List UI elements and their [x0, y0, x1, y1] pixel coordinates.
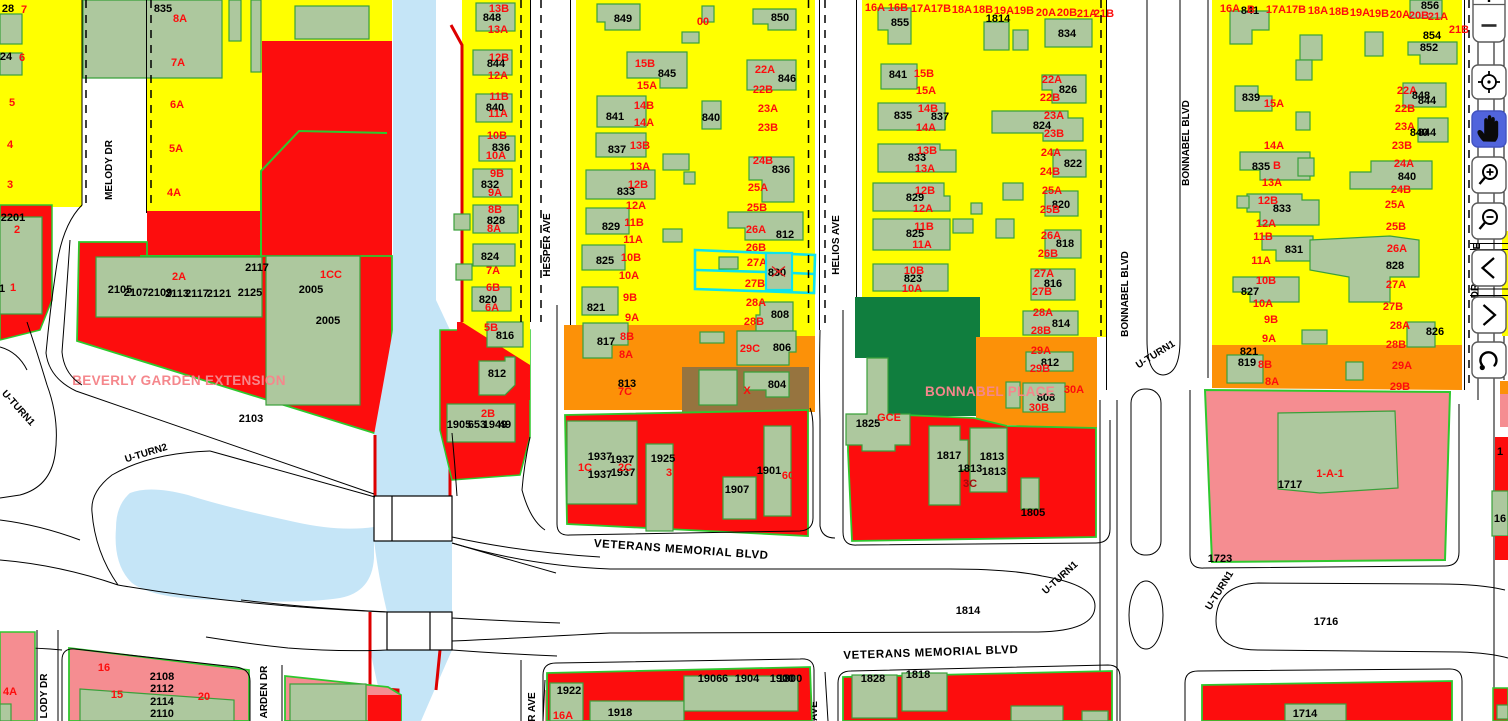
svg-text:X: X — [743, 385, 751, 397]
svg-text:8A: 8A — [487, 223, 501, 235]
svg-text:23A: 23A — [758, 103, 778, 115]
svg-text:844: 844 — [1418, 95, 1437, 107]
svg-text:2103: 2103 — [239, 413, 263, 425]
svg-text:6: 6 — [722, 673, 728, 685]
svg-text:24A: 24A — [1041, 147, 1061, 159]
svg-text:13A: 13A — [630, 161, 650, 173]
svg-text:11B: 11B — [624, 217, 644, 229]
svg-text:9A: 9A — [625, 312, 639, 324]
svg-text:BONNABEL BLVD: BONNABEL BLVD — [1120, 251, 1131, 337]
svg-text:835: 835 — [154, 3, 172, 15]
svg-text:1925: 1925 — [651, 453, 675, 465]
svg-text:22B: 22B — [1040, 92, 1060, 104]
svg-text:6B: 6B — [486, 282, 500, 294]
svg-text:1918: 1918 — [608, 707, 632, 719]
svg-text:10A: 10A — [486, 150, 506, 162]
svg-text:21B: 21B — [1449, 24, 1469, 36]
svg-text:812: 812 — [776, 229, 794, 241]
svg-text:18A: 18A — [952, 4, 972, 16]
svg-text:835: 835 — [894, 110, 912, 122]
svg-text:28B: 28B — [1386, 339, 1406, 351]
svg-text:819: 819 — [1238, 357, 1256, 369]
svg-text:12A: 12A — [1256, 218, 1276, 230]
svg-text:10B: 10B — [487, 130, 507, 142]
svg-text:11B: 11B — [1253, 231, 1273, 243]
svg-text:12A: 12A — [913, 203, 933, 215]
svg-text:16: 16 — [98, 662, 110, 674]
svg-text:1813: 1813 — [980, 451, 1004, 463]
svg-text:4A: 4A — [167, 187, 181, 199]
svg-text:19B: 19B — [1369, 8, 1389, 20]
svg-text:1: 1 — [10, 282, 16, 294]
svg-text:1814: 1814 — [986, 13, 1011, 25]
svg-text:818: 818 — [1056, 238, 1074, 250]
svg-text:22B: 22B — [753, 84, 773, 96]
svg-text:20A: 20A — [1390, 9, 1410, 21]
svg-text:1906: 1906 — [698, 673, 722, 685]
svg-text:13A: 13A — [1262, 177, 1282, 189]
svg-text:2110: 2110 — [150, 708, 174, 720]
svg-text:15B: 15B — [635, 58, 655, 70]
svg-text:821: 821 — [587, 302, 605, 314]
svg-text:11A: 11A — [1251, 255, 1271, 267]
svg-text:852: 852 — [1420, 42, 1438, 54]
svg-text:20A: 20A — [1036, 7, 1056, 19]
svg-text:7A: 7A — [486, 265, 500, 277]
svg-text:837: 837 — [608, 144, 626, 156]
svg-text:25B: 25B — [1386, 221, 1406, 233]
svg-text:10B: 10B — [621, 252, 641, 264]
svg-text:16A: 16A — [1220, 3, 1240, 15]
svg-text:844: 844 — [1418, 127, 1437, 139]
svg-text:2117: 2117 — [245, 262, 269, 274]
svg-text:1C: 1C — [578, 462, 592, 474]
svg-text:855: 855 — [891, 17, 909, 29]
svg-text:1714: 1714 — [1293, 708, 1318, 720]
svg-text:5A: 5A — [169, 143, 183, 155]
svg-text:25A: 25A — [748, 182, 768, 194]
svg-text:840: 840 — [702, 112, 720, 124]
svg-text:19A: 19A — [1350, 7, 1370, 19]
svg-text:1817: 1817 — [937, 450, 961, 462]
svg-text:BONNABEL BLVD: BONNABEL BLVD — [1181, 100, 1192, 186]
svg-text:854: 854 — [1423, 30, 1442, 42]
svg-text:30A: 30A — [1064, 384, 1084, 396]
svg-text:17A: 17A — [1266, 4, 1286, 16]
svg-text:28A: 28A — [1390, 320, 1410, 332]
svg-text:4: 4 — [7, 139, 14, 151]
svg-text:BONNABEL PLACE: BONNABEL PLACE — [925, 384, 1055, 399]
svg-text:839: 839 — [1242, 92, 1260, 104]
svg-text:24B: 24B — [1040, 166, 1060, 178]
svg-text:845: 845 — [658, 68, 676, 80]
svg-text:6A: 6A — [485, 302, 499, 314]
svg-text:1716: 1716 — [1314, 616, 1338, 628]
svg-text:9B: 9B — [1264, 314, 1278, 326]
svg-text:13A: 13A — [915, 163, 935, 175]
svg-text:29C: 29C — [740, 343, 760, 355]
svg-text:20: 20 — [198, 691, 210, 703]
svg-text:21B: 21B — [1094, 8, 1114, 20]
svg-text:1828: 1828 — [861, 673, 885, 685]
svg-text:11A: 11A — [488, 108, 508, 120]
svg-text:6A: 6A — [170, 99, 184, 111]
svg-text:28A: 28A — [746, 297, 766, 309]
svg-text:24B: 24B — [753, 155, 773, 167]
svg-text:826: 826 — [1426, 326, 1444, 338]
svg-text:R AVE: R AVE — [527, 692, 538, 721]
svg-text:2107: 2107 — [124, 287, 148, 299]
svg-text:16A: 16A — [865, 2, 885, 14]
svg-text:6: 6 — [19, 52, 25, 64]
svg-text:10A: 10A — [619, 270, 639, 282]
svg-text:2: 2 — [14, 224, 20, 236]
svg-text:826: 826 — [1059, 84, 1077, 96]
svg-text:8A: 8A — [1265, 376, 1279, 388]
svg-text:29A: 29A — [1392, 360, 1412, 372]
svg-text:1901: 1901 — [757, 465, 781, 477]
svg-text:25A: 25A — [1385, 199, 1405, 211]
svg-text:817: 817 — [597, 336, 615, 348]
svg-text:16: 16 — [1494, 513, 1506, 525]
svg-text:18A: 18A — [1308, 5, 1328, 17]
svg-text:LODY DR: LODY DR — [39, 673, 50, 719]
svg-text:MELODY DR: MELODY DR — [104, 139, 115, 200]
svg-text:808: 808 — [771, 309, 789, 321]
svg-text:2108: 2108 — [150, 671, 174, 683]
svg-text:8B: 8B — [620, 331, 634, 343]
svg-text:831: 831 — [1285, 244, 1303, 256]
svg-text:2112: 2112 — [150, 683, 174, 695]
svg-text:14A: 14A — [1264, 140, 1284, 152]
svg-text:29B: 29B — [1390, 381, 1410, 393]
svg-text:20B: 20B — [1057, 7, 1077, 19]
svg-text:19B: 19B — [1014, 5, 1034, 17]
svg-text:ARDEN DR: ARDEN DR — [259, 665, 270, 719]
svg-text:1907: 1907 — [725, 484, 749, 496]
svg-text:8B: 8B — [1258, 359, 1272, 371]
svg-text:14B: 14B — [918, 103, 938, 115]
svg-text:60: 60 — [782, 470, 794, 482]
svg-text:24: 24 — [0, 51, 13, 63]
svg-text:7A: 7A — [171, 57, 185, 69]
svg-text:1813: 1813 — [958, 463, 982, 475]
svg-text:28B: 28B — [744, 316, 764, 328]
svg-text:2C: 2C — [618, 462, 632, 474]
svg-text:2005: 2005 — [299, 284, 323, 296]
svg-text:1800: 1800 — [778, 673, 802, 685]
svg-text:21A: 21A — [1428, 11, 1448, 23]
svg-text:840: 840 — [1398, 171, 1416, 183]
svg-text:5: 5 — [9, 97, 15, 109]
svg-text:11A: 11A — [912, 239, 932, 251]
svg-text:13A: 13A — [488, 24, 508, 36]
svg-text:833: 833 — [1273, 203, 1291, 215]
svg-text:849: 849 — [614, 13, 632, 25]
svg-text:22A: 22A — [755, 64, 775, 76]
svg-text:14A: 14A — [916, 122, 936, 134]
svg-text:850: 850 — [771, 12, 789, 24]
svg-text:29B: 29B — [1030, 363, 1050, 375]
svg-text:22B: 22B — [1395, 103, 1415, 115]
svg-text:27B: 27B — [1032, 286, 1052, 298]
svg-text:846: 846 — [778, 73, 796, 85]
svg-text:18B: 18B — [1329, 6, 1349, 18]
svg-text:15A: 15A — [1264, 98, 1284, 110]
svg-text:825: 825 — [596, 255, 614, 267]
svg-text:824: 824 — [481, 251, 500, 263]
svg-text:7: 7 — [21, 4, 27, 16]
svg-text:23B: 23B — [1044, 128, 1064, 140]
svg-text:1805: 1805 — [1021, 507, 1045, 519]
svg-text:27B: 27B — [1383, 301, 1403, 313]
svg-text:2201: 2201 — [1, 212, 25, 224]
svg-text:HELIOS AVE: HELIOS AVE — [831, 215, 842, 275]
svg-text:26A: 26A — [1387, 243, 1407, 255]
svg-text:15A: 15A — [637, 80, 657, 92]
svg-text:HESPER AVE: HESPER AVE — [542, 213, 553, 277]
svg-text:856: 856 — [1421, 0, 1439, 12]
svg-text:15: 15 — [111, 689, 123, 701]
svg-text:3C: 3C — [963, 478, 977, 490]
svg-text:1: 1 — [1497, 446, 1503, 458]
svg-text:804: 804 — [768, 379, 787, 391]
svg-text:23B: 23B — [758, 122, 778, 134]
svg-text:1: 1 — [0, 283, 5, 295]
svg-text:841: 841 — [889, 69, 907, 81]
svg-text:14B: 14B — [634, 100, 654, 112]
svg-text:13B: 13B — [630, 140, 650, 152]
svg-text:29A: 29A — [1031, 345, 1051, 357]
svg-text:1904: 1904 — [735, 673, 760, 685]
svg-text:1814: 1814 — [956, 605, 981, 617]
svg-text:11A: 11A — [623, 234, 643, 246]
svg-text:E: E — [1472, 242, 1483, 249]
svg-text:836: 836 — [772, 164, 790, 176]
svg-text:806: 806 — [773, 342, 791, 354]
svg-text:GCE: GCE — [877, 412, 901, 424]
svg-text:10A: 10A — [902, 283, 922, 295]
svg-text:25B: 25B — [747, 202, 767, 214]
svg-text:9B: 9B — [623, 292, 637, 304]
svg-text:26B: 26B — [1038, 248, 1058, 260]
svg-text:1818: 1818 — [906, 669, 930, 681]
svg-text:9A: 9A — [1262, 333, 1276, 345]
svg-text:23B: 23B — [1392, 140, 1412, 152]
svg-text:17A: 17A — [911, 3, 931, 15]
svg-text:2A: 2A — [172, 271, 186, 283]
svg-text:14A: 14A — [634, 117, 654, 129]
svg-text:7C: 7C — [618, 386, 632, 398]
svg-text:24A: 24A — [1394, 158, 1414, 170]
svg-text:27A: 27A — [1386, 279, 1406, 291]
svg-text:2117: 2117 — [185, 288, 209, 300]
svg-text:27B: 27B — [745, 278, 765, 290]
svg-text:828: 828 — [1386, 260, 1404, 272]
svg-text:829: 829 — [602, 221, 620, 233]
svg-text:30B: 30B — [1029, 402, 1049, 414]
svg-text:B: B — [1273, 160, 1281, 172]
svg-text:3: 3 — [666, 467, 672, 479]
svg-text:2121: 2121 — [207, 288, 231, 300]
svg-text:17B: 17B — [931, 3, 951, 15]
svg-text:827: 827 — [1241, 286, 1259, 298]
svg-text:17B: 17B — [1286, 4, 1306, 16]
svg-text:BEVERLY GARDEN EXTENSION: BEVERLY GARDEN EXTENSION — [72, 373, 286, 388]
svg-text:49: 49 — [499, 419, 511, 431]
svg-text:1922: 1922 — [557, 685, 581, 697]
svg-text:841: 841 — [606, 111, 624, 123]
svg-text:814: 814 — [1052, 318, 1071, 330]
svg-text:27A: 27A — [747, 257, 767, 269]
svg-text:15B: 15B — [914, 68, 934, 80]
svg-text:1-A-1: 1-A-1 — [1316, 468, 1344, 480]
svg-text:1813: 1813 — [982, 466, 1006, 478]
svg-text:822: 822 — [1064, 158, 1082, 170]
svg-text:3: 3 — [7, 179, 13, 191]
svg-text:25A: 25A — [1042, 185, 1062, 197]
svg-text:B: B — [1247, 4, 1255, 16]
svg-text:24B: 24B — [1391, 184, 1411, 196]
svg-text:1CC: 1CC — [320, 269, 342, 281]
svg-text:2005: 2005 — [316, 315, 340, 327]
svg-text:10A: 10A — [1253, 298, 1273, 310]
svg-text:28B: 28B — [1031, 325, 1051, 337]
svg-text:26A: 26A — [746, 224, 766, 236]
svg-text:8A: 8A — [173, 13, 187, 25]
svg-text:00: 00 — [697, 16, 709, 28]
svg-text:1723: 1723 — [1208, 553, 1232, 565]
svg-text:2125: 2125 — [238, 287, 262, 299]
svg-text:12A: 12A — [488, 70, 508, 82]
svg-text:16A: 16A — [553, 710, 573, 721]
svg-text:835: 835 — [1252, 161, 1270, 173]
svg-text:816: 816 — [496, 330, 514, 342]
svg-text:844: 844 — [487, 58, 506, 70]
svg-text:25B: 25B — [1040, 204, 1060, 216]
svg-text:848: 848 — [483, 12, 501, 24]
svg-text:4A: 4A — [3, 686, 17, 698]
svg-text:812: 812 — [488, 368, 506, 380]
svg-text:2114: 2114 — [150, 696, 175, 708]
svg-text:12A: 12A — [626, 200, 646, 212]
svg-text:1717: 1717 — [1278, 479, 1302, 491]
svg-text:834: 834 — [1058, 28, 1077, 40]
svg-text:28: 28 — [2, 3, 14, 15]
svg-text:15A: 15A — [916, 85, 936, 97]
svg-text:9A: 9A — [488, 187, 502, 199]
svg-text:16B: 16B — [888, 2, 908, 14]
svg-text:28A: 28A — [1033, 307, 1053, 319]
svg-text:8A: 8A — [619, 349, 633, 361]
svg-text:833: 833 — [617, 186, 635, 198]
